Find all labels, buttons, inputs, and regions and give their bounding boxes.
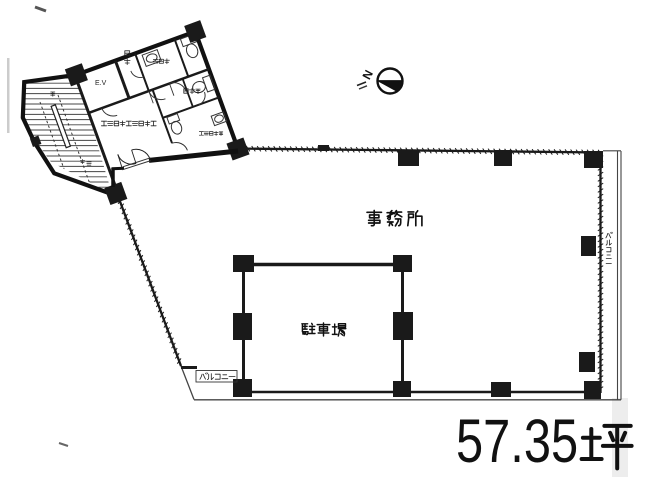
svg-text:57.35: 57.35 — [456, 407, 578, 475]
svg-text:E.V: E.V — [95, 80, 107, 87]
